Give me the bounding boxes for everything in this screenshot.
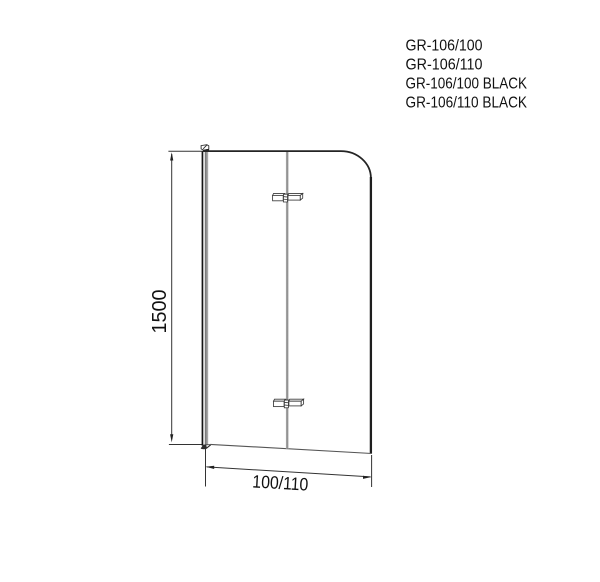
- svg-text:1500: 1500: [148, 290, 171, 334]
- svg-text:GR-106/110: GR-106/110: [406, 57, 483, 74]
- svg-text:100/110: 100/110: [252, 471, 309, 494]
- svg-text:GR-106/100: GR-106/100: [406, 38, 483, 55]
- svg-text:GR-106/110 BLACK: GR-106/110 BLACK: [406, 94, 528, 111]
- svg-text:GR-106/100 BLACK: GR-106/100 BLACK: [406, 76, 528, 93]
